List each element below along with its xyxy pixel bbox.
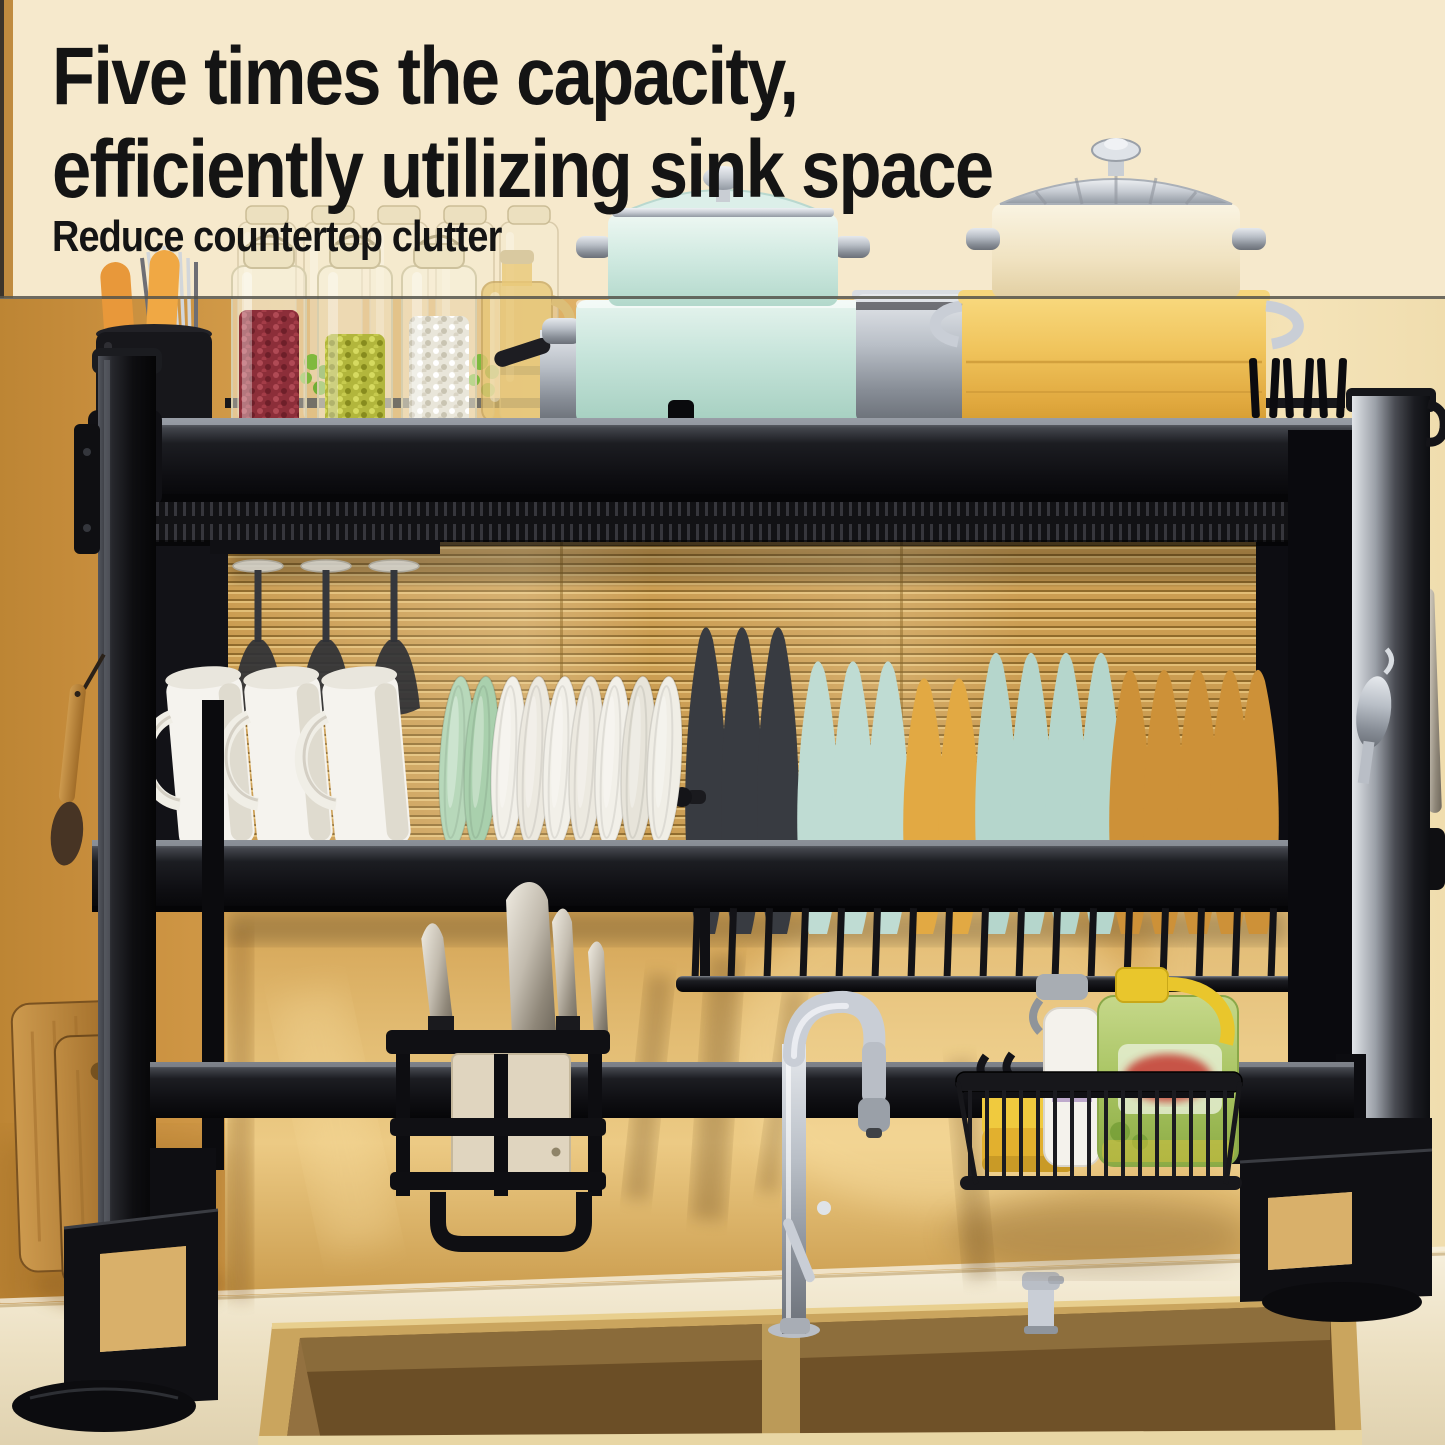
wire bbox=[1070, 1090, 1074, 1180]
divider-line bbox=[0, 296, 1445, 299]
sprayer-head bbox=[858, 1098, 890, 1132]
faucet-column bbox=[782, 1044, 806, 1334]
wire bbox=[985, 1090, 989, 1180]
wire bbox=[1087, 1090, 1091, 1180]
wire bbox=[1002, 1090, 1006, 1180]
pot-handle bbox=[1232, 228, 1266, 250]
wire bbox=[1121, 1090, 1125, 1180]
subheadline: Reduce countertop clutter bbox=[52, 212, 501, 262]
bean-jar bbox=[402, 236, 476, 448]
wire bbox=[1206, 1090, 1210, 1180]
wire bbox=[1036, 1090, 1040, 1180]
white-mugs bbox=[137, 663, 411, 852]
headline: Five times the capacity, efficiently uti… bbox=[52, 30, 992, 216]
pot-handle bbox=[966, 228, 1000, 250]
sink-divider bbox=[762, 1323, 800, 1445]
headline-line1: Five times the capacity, bbox=[52, 30, 992, 123]
top-shelf-bar bbox=[92, 418, 1358, 502]
mint-pot-lower bbox=[576, 300, 864, 424]
wire bbox=[1189, 1090, 1193, 1180]
spray-nozzle bbox=[1036, 974, 1088, 1000]
cream-pot bbox=[992, 204, 1240, 298]
pot-handle bbox=[834, 236, 870, 258]
wire bbox=[1053, 1090, 1057, 1180]
basket-rim bbox=[956, 1072, 1242, 1092]
top-shelf bbox=[88, 400, 1358, 546]
bean-jars bbox=[232, 236, 476, 448]
right-foot bbox=[1262, 1282, 1422, 1322]
pot-handle bbox=[576, 236, 612, 258]
product-image: Five times the capacity, efficiently uti… bbox=[0, 0, 1445, 1445]
leg-cutout bbox=[100, 1246, 186, 1352]
cleaver bbox=[452, 1054, 570, 1180]
middle-shelf-bar bbox=[92, 840, 1360, 912]
wire bbox=[1019, 1090, 1023, 1180]
faucet-spout bbox=[862, 1042, 886, 1104]
leg-cutout bbox=[1268, 1192, 1352, 1270]
headline-line2: efficiently utilizing sink space bbox=[52, 123, 992, 216]
wire bbox=[1155, 1090, 1159, 1180]
bean-jar bbox=[318, 236, 392, 448]
right-inner-post bbox=[1288, 430, 1352, 1070]
wire bbox=[1138, 1090, 1142, 1180]
holder-top-plate bbox=[386, 1030, 610, 1054]
mint-pot-upper bbox=[608, 214, 838, 306]
jug-cap bbox=[1116, 968, 1168, 1002]
dish-soap-jug bbox=[1098, 968, 1238, 1166]
side-hook-plate bbox=[74, 424, 100, 554]
wire bbox=[1104, 1090, 1108, 1180]
bean-jar bbox=[232, 236, 306, 448]
stemware-rail bbox=[210, 540, 440, 554]
wire bbox=[1172, 1090, 1176, 1180]
drip-rail bbox=[676, 976, 1352, 992]
